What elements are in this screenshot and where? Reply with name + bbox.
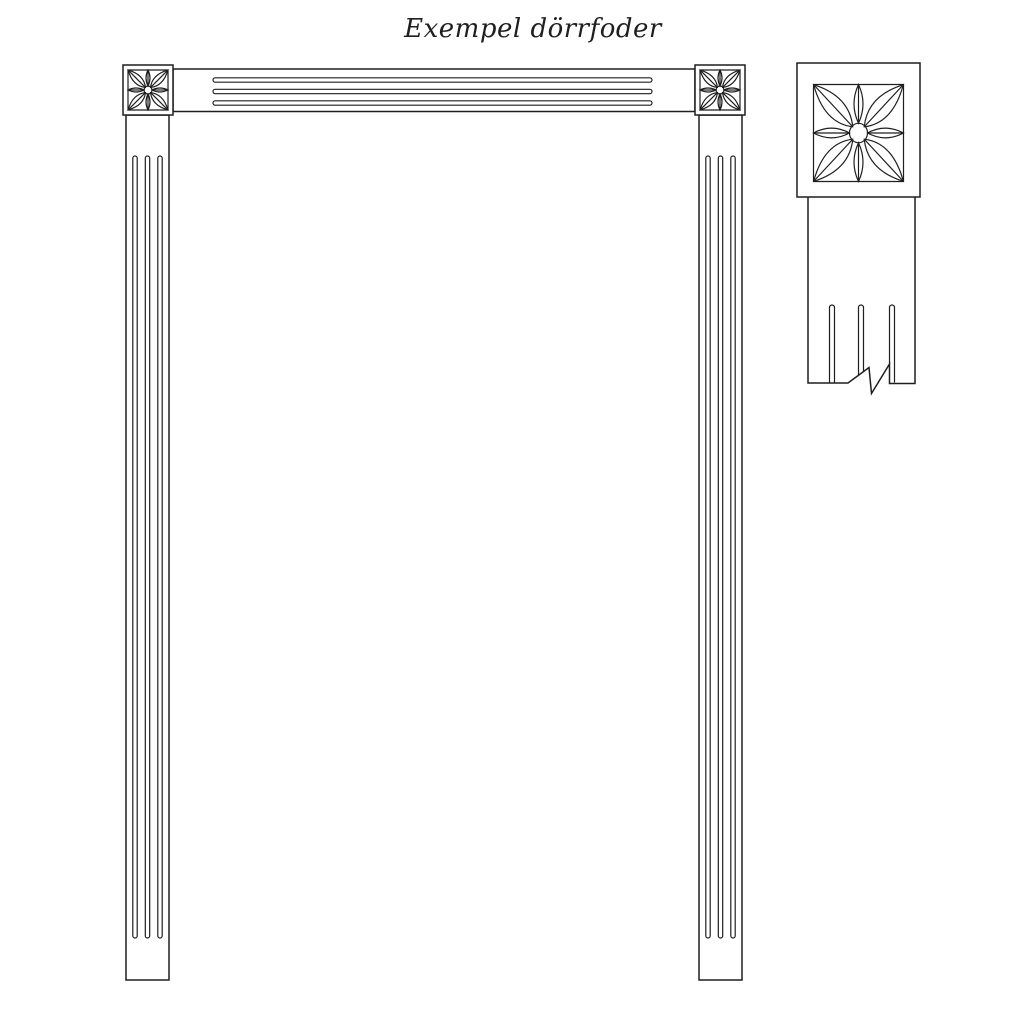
left-casing: [126, 115, 169, 980]
break-line: [808, 197, 915, 394]
left-corner-block: [123, 65, 173, 115]
rosette-icon: [697, 67, 743, 113]
rosette-icon: [125, 67, 171, 113]
technical-drawing-page: Exempel dörrfoder: [0, 0, 1024, 1024]
head-casing: [173, 69, 695, 112]
detail-corner-block: [797, 63, 920, 197]
corner-block-detail-view: [797, 63, 920, 394]
detail-casing-section: [808, 197, 915, 394]
door-frame: [123, 65, 745, 980]
right-corner-block: [695, 65, 745, 115]
door-casing-drawing: [0, 0, 1024, 1024]
right-casing: [699, 115, 742, 980]
